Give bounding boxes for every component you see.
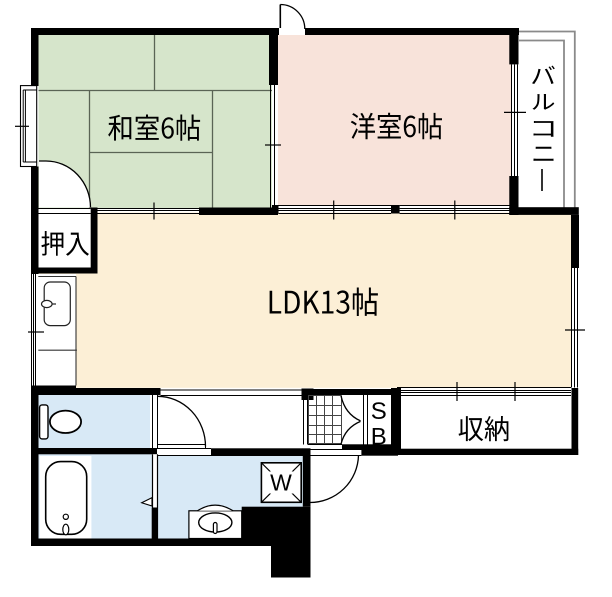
svg-text:S: S bbox=[371, 398, 387, 425]
svg-text:W: W bbox=[270, 470, 292, 496]
